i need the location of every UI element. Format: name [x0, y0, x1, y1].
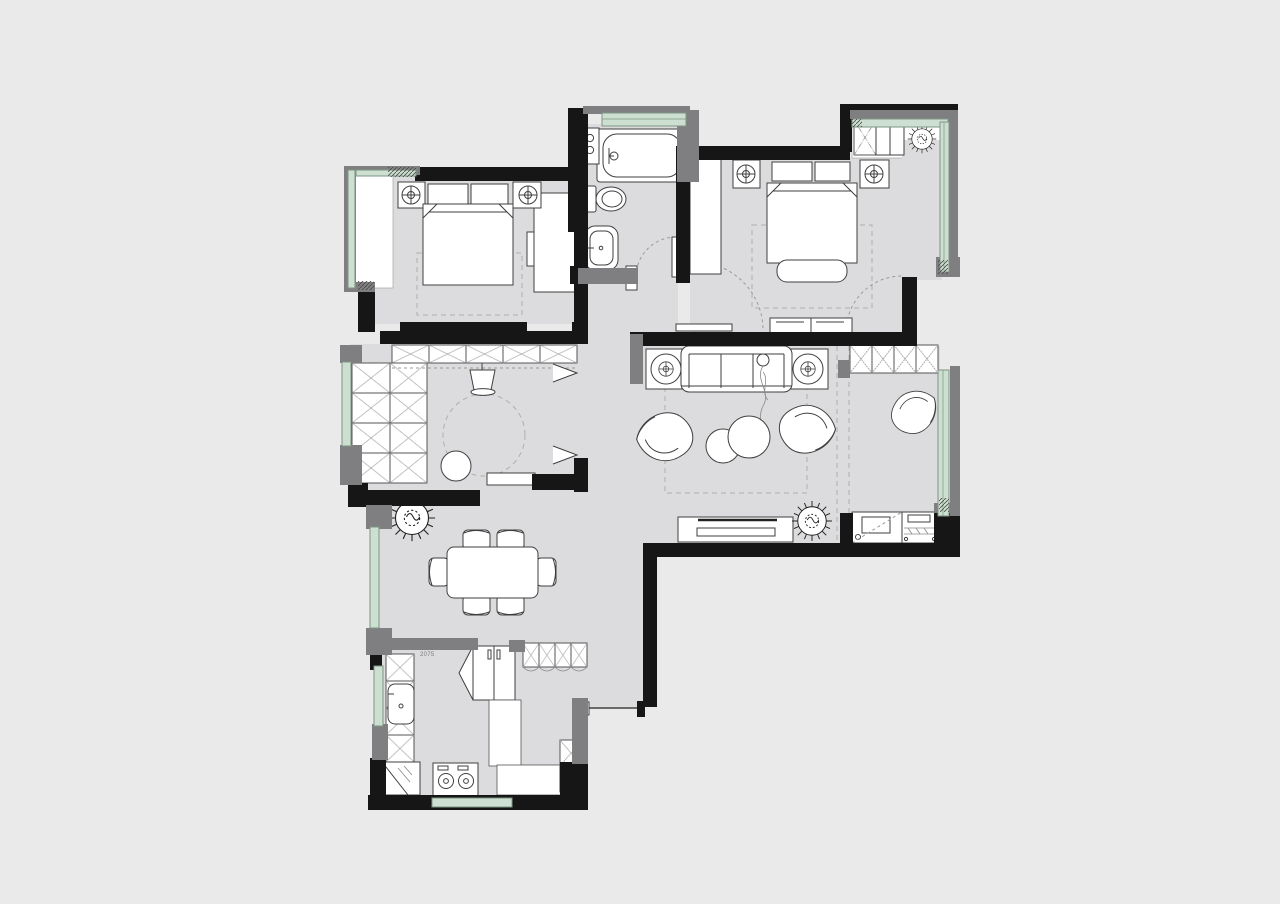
hanging-rail — [497, 765, 566, 795]
storage-cell — [872, 345, 894, 373]
pillow — [428, 184, 468, 204]
cabinet-cell — [392, 345, 429, 363]
foot-bench — [777, 260, 847, 282]
overhead-cabinet — [555, 643, 571, 667]
cabinet-cell — [540, 345, 577, 363]
table-lamp-icon — [402, 186, 420, 204]
plant-icon — [792, 501, 832, 541]
plant-icon — [908, 125, 937, 154]
desk-chair — [470, 370, 495, 390]
floor-plan-canvas: 2075 — [0, 0, 1280, 904]
sill-hatch — [358, 281, 374, 290]
pillow — [471, 184, 508, 204]
desk-chair-base — [471, 389, 495, 396]
dining-table — [447, 547, 538, 598]
table-lamp-icon — [659, 362, 673, 376]
window — [940, 122, 949, 272]
sill-hatch — [388, 167, 416, 177]
sill-hatch — [852, 119, 862, 127]
cabinet-cell — [429, 345, 466, 363]
window — [852, 119, 948, 127]
cabinet-cell — [352, 393, 390, 423]
window — [938, 370, 949, 516]
storage-cell — [916, 345, 938, 373]
floor-plan-page: 2075 — [0, 0, 1280, 904]
storage-cell — [894, 345, 916, 373]
double-bed — [423, 204, 513, 285]
cabinet-cell — [352, 363, 390, 393]
window — [432, 798, 512, 807]
table-lamp-icon — [737, 165, 755, 183]
storage-cell — [850, 345, 872, 373]
sofa — [681, 346, 792, 392]
hanging-rail — [489, 700, 521, 766]
cabinet-cell — [390, 453, 427, 483]
table-lamp-icon — [865, 165, 883, 183]
counter-cell — [386, 735, 414, 762]
pillow — [815, 162, 850, 181]
overhead-cabinet — [523, 643, 539, 667]
sill-hatch — [939, 498, 949, 512]
overhead-cabinet — [539, 643, 555, 667]
pillow — [772, 162, 812, 181]
cabinet-cell — [503, 345, 540, 363]
table-lamp-icon — [801, 362, 815, 376]
cabinet-cell — [390, 363, 427, 393]
sill-hatch — [938, 260, 948, 274]
bay-window-floor — [350, 172, 393, 288]
table-lamp-icon — [519, 186, 537, 204]
open-door-leaf — [676, 324, 732, 331]
stove — [433, 763, 478, 796]
cabinet-cell — [390, 423, 427, 453]
window — [342, 362, 351, 446]
dimension-label: 2075 — [420, 652, 435, 658]
window — [348, 170, 355, 288]
window — [602, 113, 686, 126]
window — [370, 527, 379, 628]
cabinet-cell — [466, 345, 503, 363]
counter-cell — [386, 654, 414, 681]
round-stool — [441, 451, 471, 481]
double-bed — [767, 183, 857, 263]
window — [374, 666, 383, 726]
coffee-table — [728, 416, 770, 458]
door-leaf — [527, 232, 534, 266]
entry-floor — [588, 643, 643, 709]
low-bench — [487, 473, 535, 485]
overhead-cabinet — [571, 643, 587, 667]
desk-with-equipment — [852, 512, 938, 543]
corner-counter — [382, 762, 420, 795]
cabinet-cell — [390, 393, 427, 423]
